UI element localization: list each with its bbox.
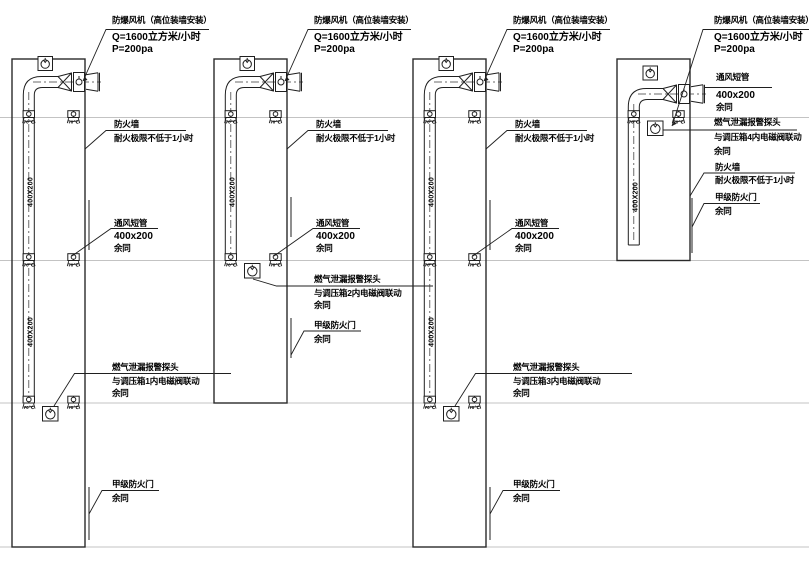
gas-sensor-label: 燃气泄漏报警探头 <box>714 117 780 128</box>
panel-2-drawing: 400X200 <box>214 30 433 404</box>
duct-size-text: 400X200 <box>429 177 436 207</box>
vent-pipe-size: 400x200 <box>716 90 755 101</box>
gas-sensor-label: 燃气泄漏报警探头 <box>513 362 579 373</box>
gas-sensor-link: 与调压箱1内电磁阀联动 <box>112 376 200 387</box>
vent-pipe-label: 通风短管 <box>114 218 147 229</box>
fan-flow-rate: Q=1600立方米/小时 <box>513 32 602 43</box>
panel-4-drawing: 400X200 <box>617 30 809 261</box>
panel-1-leaders <box>54 30 231 515</box>
vent-pipe-same: 余同 <box>716 102 733 113</box>
panel-1-drawing: 400X200 400X200 <box>12 30 231 548</box>
fan-spec-title: 防爆风机（高位装墙安装） <box>714 15 809 26</box>
gas-sensor-same: 余同 <box>513 388 530 399</box>
gas-sensor-link: 与调压箱2内电磁阀联动 <box>314 288 402 299</box>
gas-sensor-same: 余同 <box>714 146 731 157</box>
firewall-label: 防火墙 <box>114 119 139 130</box>
gas-sensor-same: 余同 <box>314 300 331 311</box>
vent-pipe-same: 余同 <box>316 243 333 254</box>
fire-door-label: 甲级防火门 <box>314 320 356 331</box>
vent-pipe-label: 通风短管 <box>316 218 349 229</box>
fire-door-same: 余同 <box>513 493 530 504</box>
gas-sensor-same: 余同 <box>112 388 129 399</box>
firewall-rating: 耐火极限不低于1小时 <box>715 175 794 186</box>
gas-sensor-label: 燃气泄漏报警探头 <box>112 362 178 373</box>
gas-sensor-label: 燃气泄漏报警探头 <box>314 274 380 285</box>
fan-spec-title: 防爆风机（高位装墙安装） <box>513 15 613 26</box>
firewall-label: 防火墙 <box>515 119 540 130</box>
fan-flow-rate: Q=1600立方米/小时 <box>112 32 201 43</box>
duct-size-text: 400X200 <box>633 182 640 212</box>
firewall-label: 防火墙 <box>316 119 341 130</box>
fan-pressure: P=200pa <box>513 44 554 55</box>
panel-3-leaders <box>455 30 632 515</box>
fire-door-label: 甲级防火门 <box>513 479 555 490</box>
vent-pipe-label: 通风短管 <box>515 218 548 229</box>
fan-spec-title: 防爆风机（高位装墙安装） <box>112 15 212 26</box>
vent-pipe-size: 400x200 <box>316 231 355 242</box>
fan-spec-title: 防爆风机（高位装墙安装） <box>314 15 414 26</box>
duct-size-text: 400X200 <box>28 317 35 347</box>
panel-3-drawing: 400X200 400X200 <box>413 30 632 548</box>
fan-pressure: P=200pa <box>314 44 355 55</box>
firewall-rating: 耐火极限不低于1小时 <box>114 133 193 144</box>
fire-door-same: 余同 <box>314 334 331 345</box>
firewall-label: 防火墙 <box>715 162 740 173</box>
vent-pipe-size: 400x200 <box>114 231 153 242</box>
vent-pipe-size: 400x200 <box>515 231 554 242</box>
fire-door-same: 余同 <box>715 206 732 217</box>
fire-door-label: 甲级防火门 <box>715 192 757 203</box>
vent-pipe-same: 余同 <box>515 243 532 254</box>
firewall-rating: 耐火极限不低于1小时 <box>515 133 594 144</box>
duct-elevation-drawing: 70℃ <box>0 0 809 581</box>
duct-size-text: 400X200 <box>230 177 237 207</box>
gas-sensor-link: 与调压箱4内电磁阀联动 <box>714 132 802 143</box>
vent-pipe-label: 通风短管 <box>716 72 749 83</box>
gas-sensor-link: 与调压箱3内电磁阀联动 <box>513 376 601 387</box>
fan-pressure: P=200pa <box>714 44 755 55</box>
duct-size-text: 400X200 <box>429 317 436 347</box>
fan-flow-rate: Q=1600立方米/小时 <box>314 32 403 43</box>
firewall-rating: 耐火极限不低于1小时 <box>316 133 395 144</box>
duct-size-text: 400X200 <box>28 177 35 207</box>
vent-pipe-same: 余同 <box>114 243 131 254</box>
fan-pressure: P=200pa <box>112 44 153 55</box>
fire-door-label: 甲级防火门 <box>112 479 154 490</box>
fan-flow-rate: Q=1600立方米/小时 <box>714 32 803 43</box>
fire-door-same: 余同 <box>112 493 129 504</box>
